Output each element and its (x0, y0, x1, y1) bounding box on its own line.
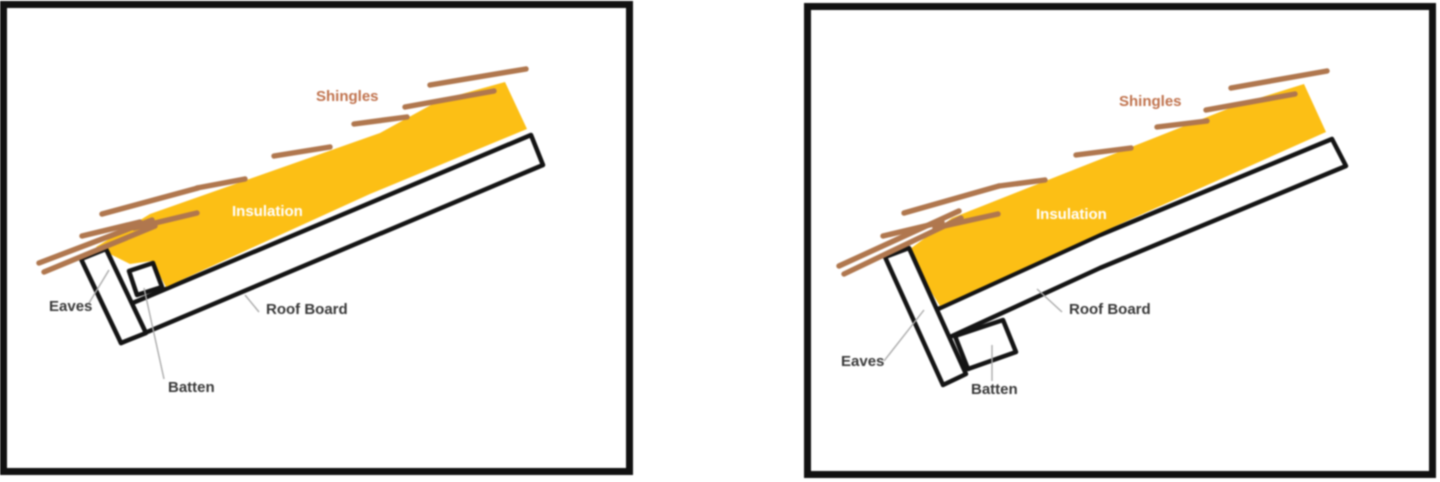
svg-text:Roof Board: Roof Board (1069, 301, 1151, 318)
svg-text:Insulation: Insulation (232, 203, 303, 220)
svg-text:Shingles: Shingles (316, 88, 379, 105)
svg-text:Batten: Batten (168, 379, 215, 396)
svg-text:Eaves: Eaves (49, 298, 92, 315)
svg-text:Shingles: Shingles (1119, 93, 1182, 110)
svg-text:Insulation: Insulation (1036, 206, 1107, 223)
svg-text:Batten: Batten (971, 381, 1018, 398)
svg-text:Roof Board: Roof Board (266, 301, 348, 318)
svg-text:Eaves: Eaves (841, 353, 884, 370)
